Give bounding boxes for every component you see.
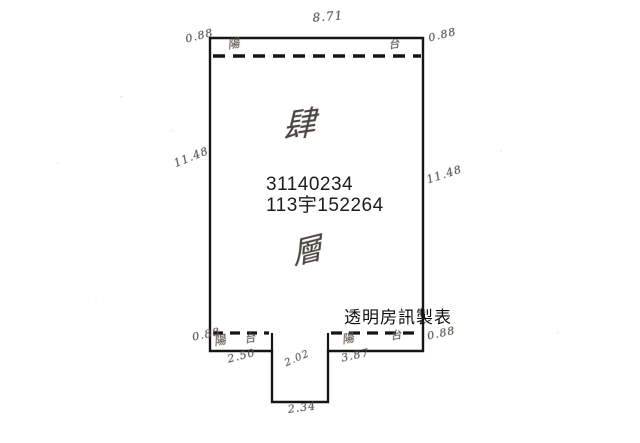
floor-numeral: 肆 [283,95,316,148]
parcel-number: 31140234 [266,174,384,195]
building-outline [210,38,423,402]
id-block: 31140234 113宇152264 [266,174,384,216]
floor-unit: 層 [289,223,324,274]
dim-top-width: 8.71 [312,8,344,25]
credit-watermark: 透明房訊製表 [344,303,452,328]
floorplan-drawing [0,0,640,443]
case-number: 113宇152264 [266,195,384,216]
survey-plan-scan: 31140234 113宇152264 透明房訊製表 肆 層 8.71 0.88… [0,0,640,443]
